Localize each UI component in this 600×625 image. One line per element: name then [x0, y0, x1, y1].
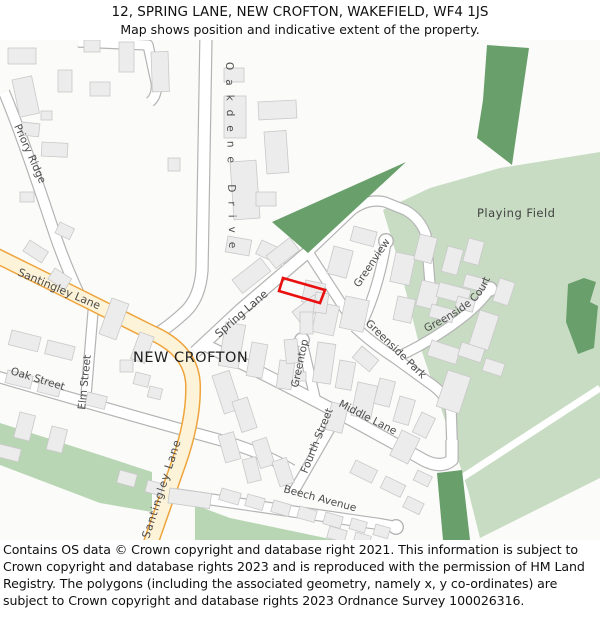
- header: 12, SPRING LANE, NEW CROFTON, WAKEFIELD,…: [0, 0, 600, 40]
- page-subtitle: Map shows position and indicative extent…: [0, 21, 600, 38]
- building: [41, 142, 68, 157]
- building: [84, 40, 100, 52]
- building: [264, 130, 289, 173]
- map-canvas: Priory Ridge Oakdene Drive Santingley La…: [0, 40, 600, 540]
- building: [256, 192, 276, 206]
- building: [300, 312, 313, 334]
- building: [90, 82, 110, 96]
- building: [8, 48, 36, 64]
- building: [151, 51, 169, 92]
- building: [20, 192, 34, 202]
- building: [168, 158, 180, 171]
- property-map-page: 12, SPRING LANE, NEW CROFTON, WAKEFIELD,…: [0, 0, 600, 625]
- place-label-new-crofton: NEW CROFTON: [133, 350, 248, 366]
- page-title: 12, SPRING LANE, NEW CROFTON, WAKEFIELD,…: [0, 4, 600, 21]
- building: [258, 100, 297, 120]
- copyright-notice: Contains OS data © Crown copyright and d…: [0, 540, 600, 610]
- building: [119, 42, 134, 72]
- building: [120, 360, 133, 372]
- place-label-playing-field: Playing Field: [477, 206, 555, 220]
- building: [41, 111, 52, 120]
- building: [58, 70, 72, 92]
- os-map: Priory Ridge Oakdene Drive Santingley La…: [0, 40, 600, 540]
